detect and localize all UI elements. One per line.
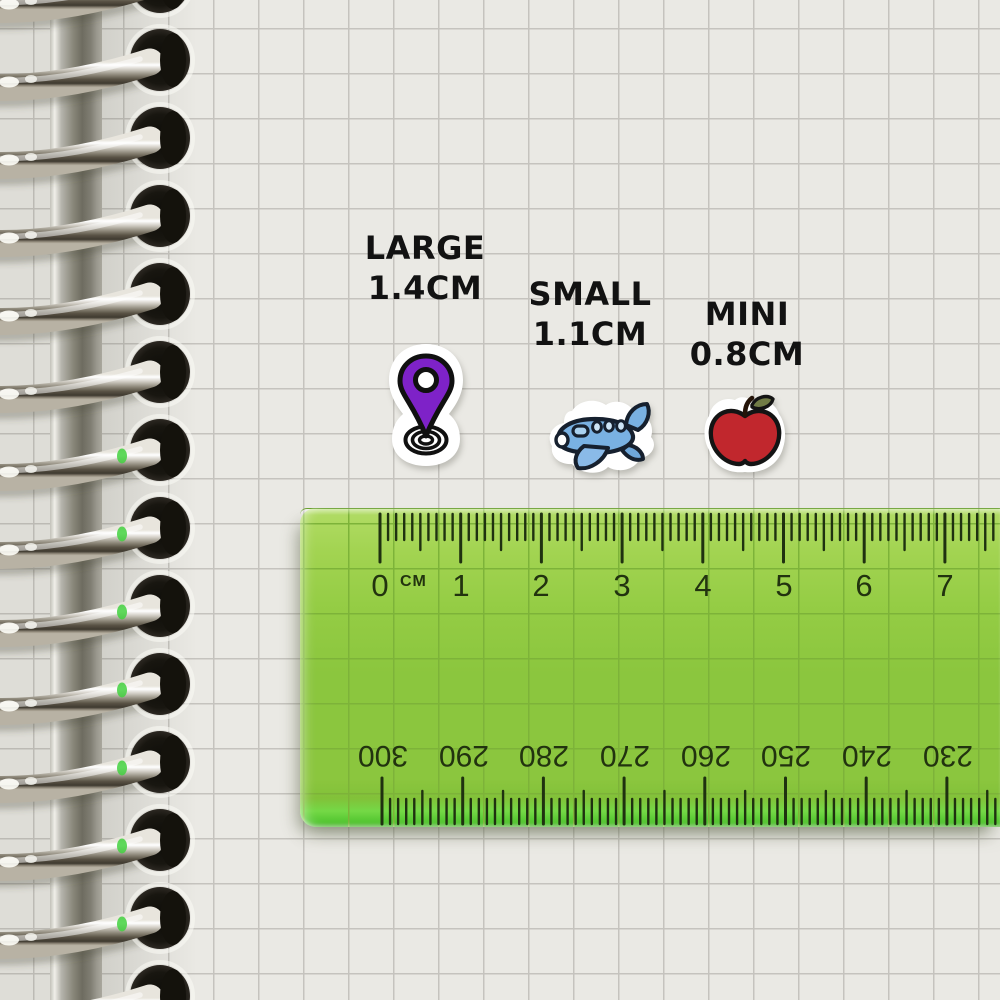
spiral-ring: [0, 962, 193, 1000]
spiral-ring: [0, 182, 193, 257]
spiral-ring: [0, 884, 193, 959]
label-small-size: 1.1CM: [533, 315, 648, 353]
spiral-ring: [0, 650, 193, 725]
green-reflection: [117, 605, 127, 620]
green-reflection: [117, 527, 127, 542]
spiral-ring: [0, 416, 193, 491]
label-large-size: 1.4CM: [368, 269, 483, 307]
label-small-name: SMALL: [529, 275, 652, 313]
apple-sticker: [701, 392, 789, 474]
label-mini-name: MINI: [705, 295, 789, 333]
green-reflection: [117, 917, 127, 932]
label-large: LARGE 1.4CM: [340, 228, 510, 308]
location-pin-sticker: [383, 342, 469, 468]
spiral-ring: [0, 0, 193, 23]
green-reflection: [117, 761, 127, 776]
spiral-ring: [0, 572, 193, 647]
spiral-ring: [0, 104, 193, 179]
ruler: [300, 508, 1000, 827]
notebook-photo: 0 CM 1 2 3 4 5 6 7 300 290 280 270 260 2…: [0, 0, 1000, 1000]
spiral-ring: [0, 260, 193, 335]
spiral-ring: [0, 728, 193, 803]
airplane-sticker: [542, 395, 658, 475]
label-mini-size: 0.8CM: [690, 335, 805, 373]
label-small: SMALL 1.1CM: [505, 274, 675, 354]
green-reflection: [117, 839, 127, 854]
label-mini: MINI 0.8CM: [662, 294, 832, 374]
label-large-name: LARGE: [365, 229, 485, 267]
spiral-ring: [0, 26, 193, 101]
spiral-binding: [0, 0, 230, 1000]
green-reflection: [117, 683, 127, 698]
spiral-ring: [0, 806, 193, 881]
green-reflection: [117, 449, 127, 464]
spiral-ring: [0, 338, 193, 413]
spiral-ring: [0, 494, 193, 569]
pin-hole-icon: [416, 370, 437, 391]
